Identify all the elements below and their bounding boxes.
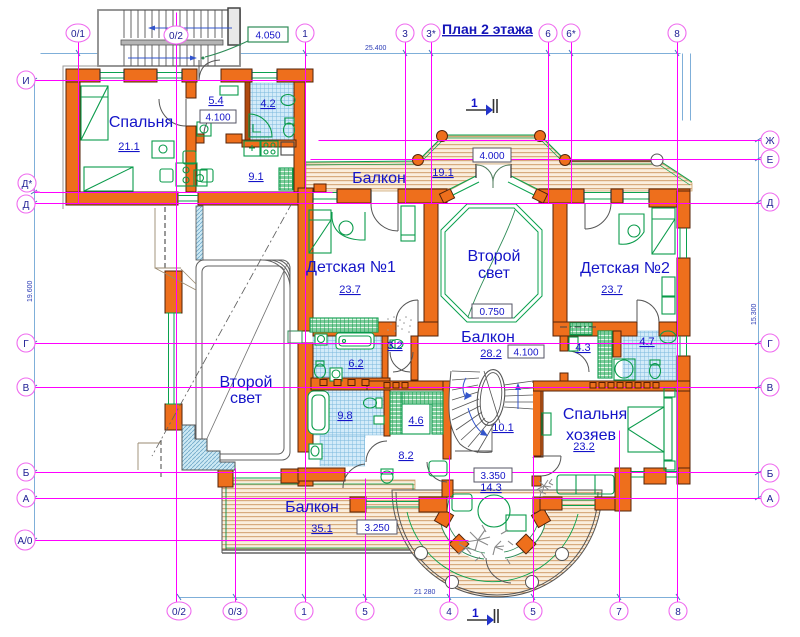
svg-text:Д: Д — [23, 200, 30, 211]
svg-text:Балкон: Балкон — [285, 499, 339, 516]
svg-text:4.2: 4.2 — [260, 98, 275, 110]
svg-text:Д: Д — [767, 198, 774, 209]
svg-text:4.000: 4.000 — [479, 151, 504, 162]
svg-text:3.2: 3.2 — [387, 340, 402, 352]
svg-text:План 2 этажа: План 2 этажа — [442, 21, 533, 37]
svg-text:0/2: 0/2 — [172, 607, 186, 618]
svg-text:23.7: 23.7 — [339, 284, 360, 296]
svg-text:Б: Б — [23, 468, 30, 479]
svg-text:Второй: Второй — [468, 248, 521, 265]
svg-text:5.4: 5.4 — [208, 95, 223, 107]
svg-text:19.600: 19.600 — [27, 280, 34, 302]
svg-text:35.1: 35.1 — [311, 523, 332, 535]
svg-text:23.7: 23.7 — [601, 284, 622, 296]
svg-text:28.2: 28.2 — [480, 348, 501, 360]
svg-text:21.1: 21.1 — [118, 141, 139, 153]
svg-text:Д*: Д* — [22, 179, 33, 190]
svg-text:3*: 3* — [426, 29, 436, 40]
svg-text:А/0: А/0 — [17, 536, 32, 547]
svg-text:3.250: 3.250 — [364, 523, 389, 534]
svg-text:5: 5 — [530, 607, 536, 618]
svg-text:15.300: 15.300 — [751, 303, 758, 325]
svg-text:21 280: 21 280 — [414, 589, 436, 596]
svg-text:25.400: 25.400 — [365, 45, 387, 52]
svg-text:9.1: 9.1 — [248, 171, 263, 183]
svg-text:Балкон: Балкон — [461, 329, 515, 346]
svg-text:Г: Г — [767, 339, 773, 350]
svg-text:свет: свет — [478, 265, 511, 282]
svg-text:4.050: 4.050 — [255, 31, 280, 42]
svg-text:Б: Б — [767, 469, 774, 480]
svg-text:1: 1 — [472, 606, 479, 620]
svg-text:0/1: 0/1 — [71, 29, 85, 40]
svg-text:Спальня: Спальня — [563, 406, 627, 423]
svg-text:10.1: 10.1 — [492, 422, 513, 434]
svg-text:6.2: 6.2 — [348, 358, 363, 370]
svg-text:4.6: 4.6 — [408, 415, 423, 427]
svg-text:0/3: 0/3 — [228, 607, 242, 618]
svg-text:14.3: 14.3 — [480, 482, 501, 494]
svg-text:4.7: 4.7 — [639, 336, 654, 348]
svg-text:3.350: 3.350 — [480, 471, 505, 482]
svg-text:6*: 6* — [566, 29, 576, 40]
svg-text:В: В — [23, 383, 30, 394]
svg-text:Детская №2: Детская №2 — [580, 260, 670, 277]
svg-text:А: А — [767, 494, 774, 505]
svg-text:7: 7 — [616, 607, 622, 618]
svg-text:Г: Г — [23, 339, 29, 350]
svg-text:23.2: 23.2 — [573, 441, 594, 453]
svg-text:Второй: Второй — [220, 374, 273, 391]
svg-text:Детская №1: Детская №1 — [306, 259, 396, 276]
svg-text:4.100: 4.100 — [205, 113, 230, 124]
svg-text:Ж: Ж — [765, 136, 775, 147]
svg-text:4: 4 — [446, 607, 452, 618]
svg-text:И: И — [22, 76, 29, 87]
svg-text:Е: Е — [767, 155, 774, 166]
svg-text:0/2: 0/2 — [169, 31, 183, 42]
svg-text:1: 1 — [471, 96, 478, 110]
svg-text:1: 1 — [301, 607, 307, 618]
svg-text:3: 3 — [402, 29, 408, 40]
svg-text:5: 5 — [362, 607, 368, 618]
svg-text:19.1: 19.1 — [432, 167, 453, 179]
svg-text:8: 8 — [675, 607, 681, 618]
svg-text:9.8: 9.8 — [337, 410, 352, 422]
svg-text:Балкон: Балкон — [352, 170, 406, 187]
svg-text:В: В — [767, 383, 774, 394]
svg-text:4.100: 4.100 — [513, 348, 538, 359]
svg-text:8.2: 8.2 — [398, 450, 413, 462]
svg-text:А: А — [23, 494, 30, 505]
svg-text:1: 1 — [302, 29, 308, 40]
svg-text:4.3: 4.3 — [575, 342, 590, 354]
svg-text:0.750: 0.750 — [479, 307, 504, 318]
svg-text:6: 6 — [545, 29, 551, 40]
svg-text:Спальня: Спальня — [109, 114, 173, 131]
svg-text:8: 8 — [674, 29, 680, 40]
svg-text:свет: свет — [230, 390, 263, 407]
